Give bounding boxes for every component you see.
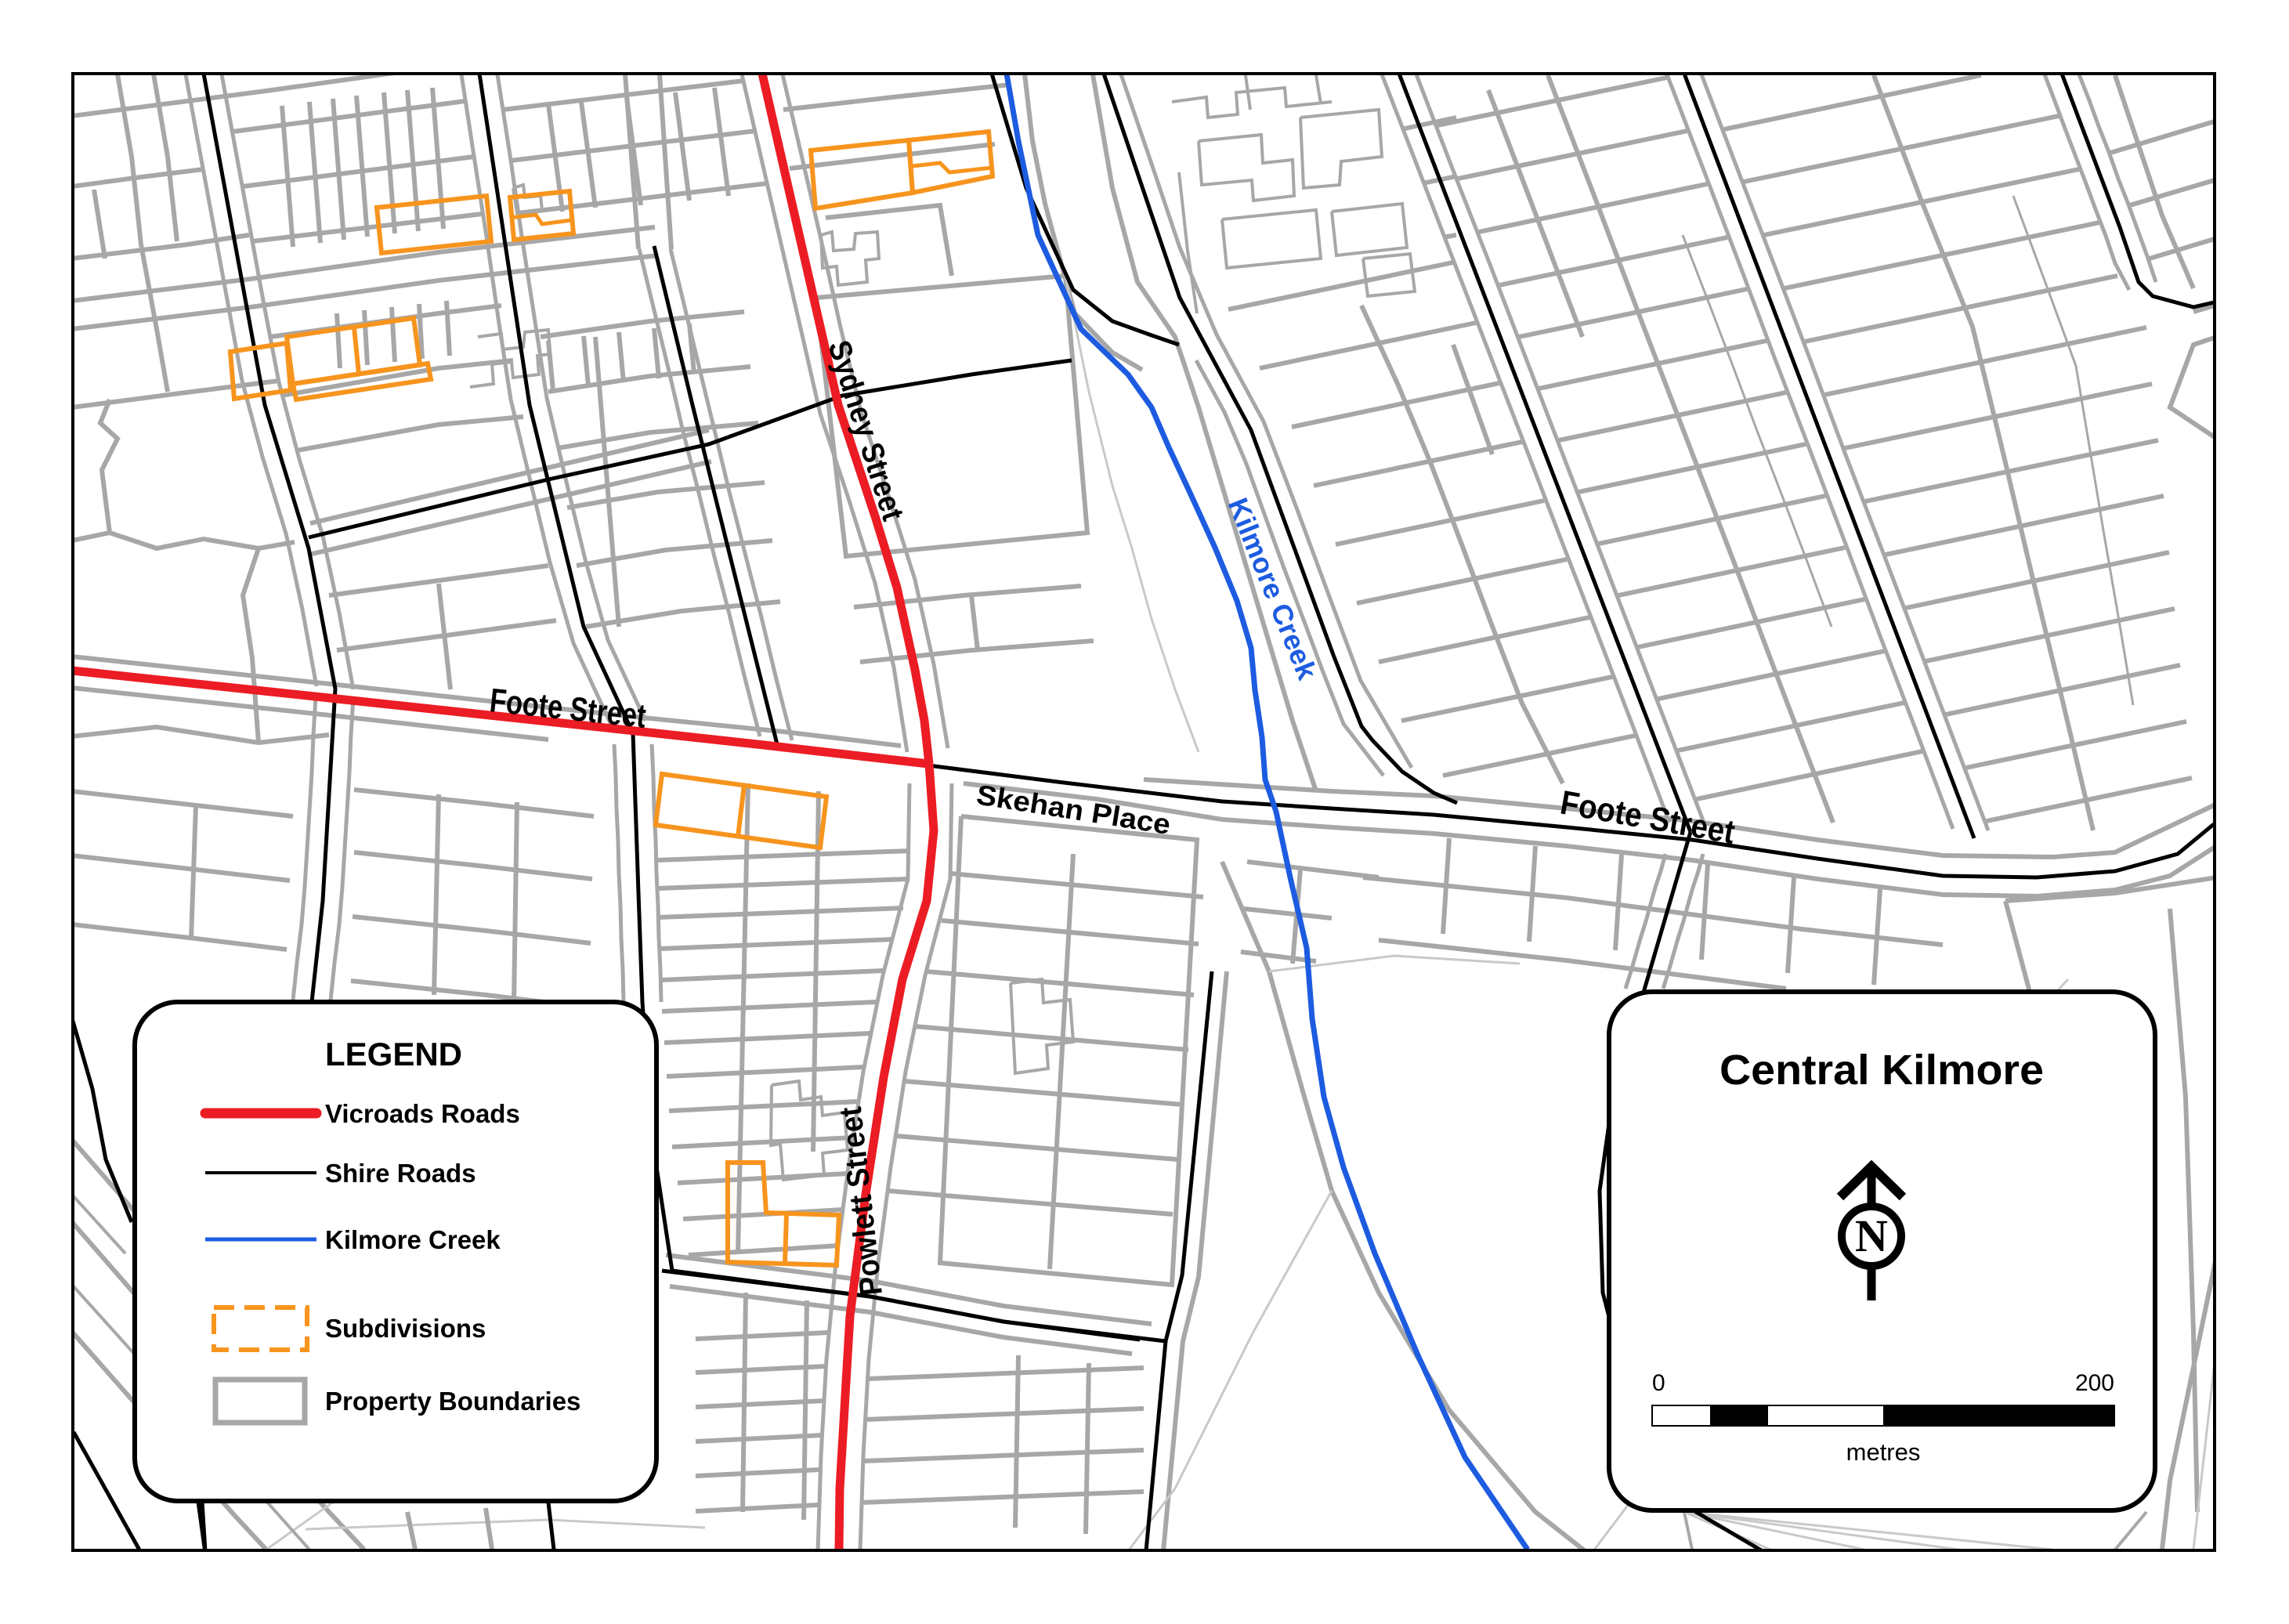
svg-text:metres: metres [1846, 1438, 1921, 1466]
svg-text:LEGEND: LEGEND [325, 1036, 462, 1072]
svg-text:Shire Roads: Shire Roads [325, 1159, 476, 1188]
svg-text:Vicroads Roads: Vicroads Roads [325, 1099, 520, 1128]
svg-text:0: 0 [1652, 1370, 1665, 1396]
svg-text:Kilmore Creek: Kilmore Creek [325, 1225, 501, 1254]
svg-text:Central Kilmore: Central Kilmore [1719, 1047, 2044, 1094]
svg-text:Subdivisions: Subdivisions [325, 1314, 486, 1343]
svg-text:N: N [1855, 1210, 1888, 1261]
svg-text:200: 200 [2075, 1370, 2114, 1396]
svg-text:Property Boundaries: Property Boundaries [325, 1387, 580, 1416]
